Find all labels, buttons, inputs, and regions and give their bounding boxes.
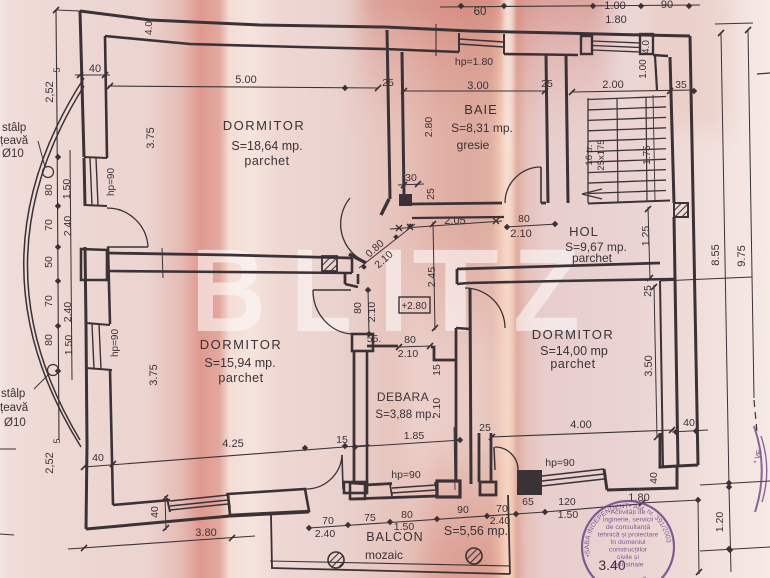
svg-text:țeavă: țeavă [0,135,29,147]
svg-text:80: 80 [518,213,530,225]
svg-text:parchet: parchet [218,371,263,385]
svg-text:2.40: 2.40 [315,528,336,540]
svg-text:hp=90: hp=90 [110,329,121,358]
svg-text:60: 60 [474,6,487,18]
svg-text:1.00: 1.00 [638,59,649,79]
svg-text:70: 70 [322,515,334,527]
svg-text:civile și: civile și [617,554,639,561]
svg-text:BALCON: BALCON [366,530,423,544]
svg-text:70: 70 [43,295,55,307]
svg-text:1.20: 1.20 [714,512,726,533]
svg-text:BAIE: BAIE [464,102,498,117]
svg-text:1.80: 1.80 [605,14,626,26]
svg-text:2,52: 2,52 [44,81,56,102]
svg-text:1.50: 1.50 [558,509,579,521]
svg-text:5.00: 5.00 [235,74,256,86]
svg-text:5: 5 [52,438,62,443]
svg-text:industriale: industriale [613,562,644,569]
svg-text:40: 40 [92,452,104,464]
svg-text:4.00: 4.00 [570,419,591,431]
svg-text:65: 65 [522,496,534,508]
svg-text:în domeniul: în domeniul [609,539,646,546]
svg-text:DORMITOR: DORMITOR [200,337,283,352]
svg-text:hp=90: hp=90 [391,469,421,481]
svg-text:3.50: 3.50 [643,355,655,376]
svg-text:2.10: 2.10 [398,348,419,360]
svg-text:inginerie, servicii: inginerie, servicii [603,517,654,524]
svg-text:35: 35 [675,79,687,91]
svg-text:1.50: 1.50 [61,179,73,200]
svg-text:Ø10: Ø10 [2,148,24,160]
svg-text:25: 25 [425,188,437,200]
svg-text:80: 80 [43,184,55,196]
svg-text:4.25: 4.25 [222,438,243,450]
svg-text:3.75: 3.75 [145,127,157,148]
svg-text:de consultanță: de consultanță [606,524,650,531]
svg-text:80: 80 [404,334,416,346]
svg-text:+2.80: +2.80 [401,301,427,312]
svg-text:S=14,00 mp: S=14,00 mp [540,344,608,358]
svg-text:70: 70 [43,219,55,231]
svg-text:2.40: 2.40 [62,302,74,323]
svg-text:3.75: 3.75 [148,364,160,385]
svg-text:DEBARA: DEBARA [377,390,429,404]
svg-text:4.0: 4.0 [144,21,155,35]
svg-text:2.40: 2.40 [62,216,74,237]
svg-text:3.00: 3.00 [467,80,488,92]
svg-text:80: 80 [401,509,413,521]
svg-text:15: 15 [431,364,443,376]
svg-text:9.75: 9.75 [736,245,748,266]
svg-text:8.55: 8.55 [710,244,722,265]
svg-text:1.00: 1.00 [604,0,625,12]
svg-text:25: 25 [541,78,553,90]
svg-text:90: 90 [457,504,469,516]
svg-text:25: 25 [479,422,491,434]
svg-text:stâlp: stâlp [2,122,26,134]
svg-text:parchet: parchet [550,357,595,371]
svg-text:30: 30 [405,172,417,184]
svg-text:2.10: 2.10 [366,302,378,323]
svg-text:80: 80 [43,334,55,346]
svg-text:55.: 55. [367,333,382,345]
svg-text:75: 75 [364,512,376,524]
svg-text:S=5,56 mp.: S=5,56 mp. [444,524,508,538]
svg-text:DORMITOR: DORMITOR [223,118,306,133]
svg-text:5: 5 [52,67,62,72]
svg-text:HOL: HOL [569,224,599,239]
svg-text:S=18,64 mp.: S=18,64 mp. [231,139,302,153]
svg-text:25: 25 [642,285,654,297]
svg-text:hp=90: hp=90 [106,168,117,197]
svg-text:40: 40 [89,63,101,75]
svg-text:S=15,94 mp.: S=15,94 mp. [204,356,275,370]
svg-text:2.45: 2.45 [426,267,438,288]
svg-text:S=3,88 mp.: S=3,88 mp. [375,409,434,421]
svg-text:2.80: 2.80 [423,117,435,138]
svg-text:Ø10: Ø10 [4,417,26,429]
svg-text:1.50: 1.50 [63,335,75,356]
svg-text:40: 40 [648,472,660,484]
svg-text:mozaic: mozaic [365,548,403,562]
svg-text:1.75: 1.75 [642,145,653,165]
svg-text:2.10: 2.10 [510,228,531,240]
svg-text:S=8,31 mp.: S=8,31 mp. [451,121,513,135]
svg-text:40: 40 [683,417,695,429]
svg-text:construcțiilor: construcțiilor [609,547,648,554]
svg-text:parchet: parchet [244,154,289,168]
svg-text:țeavă: țeavă [0,402,29,414]
svg-text:hp=90: hp=90 [545,457,575,469]
svg-text:gresie: gresie [457,138,490,152]
svg-text:90: 90 [661,0,673,11]
svg-text:25: 25 [382,77,394,89]
svg-text:DORMITOR: DORMITOR [532,327,615,342]
svg-text:70: 70 [496,503,508,515]
svg-text:40: 40 [149,506,161,518]
svg-text:25x175: 25x175 [596,139,607,170]
svg-text:120: 120 [558,496,576,508]
svg-text:parchet: parchet [572,251,613,265]
svg-text:tehnică și proiectare: tehnică și proiectare [598,532,659,539]
svg-text:2,52: 2,52 [44,452,56,473]
svg-text:1.25: 1.25 [640,226,652,247]
svg-text:3.80: 3.80 [195,527,216,539]
svg-text:16 tr.: 16 tr. [584,144,595,165]
svg-text:50: 50 [43,256,55,268]
svg-text:L: L [291,225,352,357]
svg-text:15: 15 [336,434,348,446]
svg-text:hp=1.80: hp=1.80 [455,56,493,68]
svg-text:2.05: 2.05 [444,215,465,227]
svg-text:stâlp: stâlp [1,388,25,400]
svg-text:80: 80 [352,302,364,314]
svg-text:1.85: 1.85 [404,430,425,442]
svg-text:4.0: 4.0 [641,40,652,54]
svg-text:2.00: 2.00 [602,79,623,91]
